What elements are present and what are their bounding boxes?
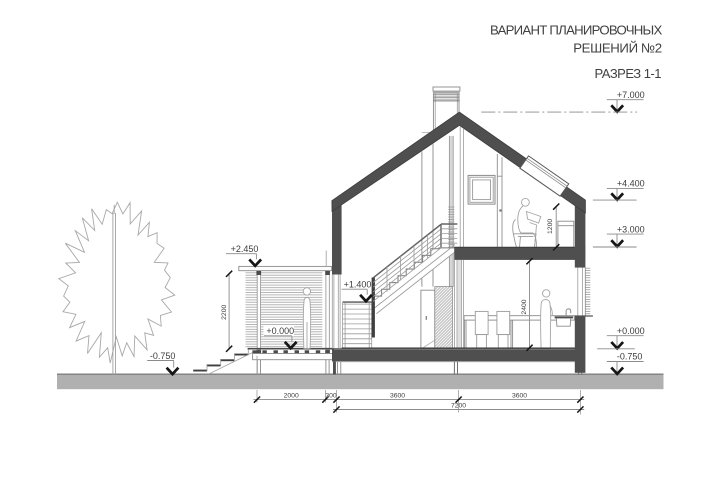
svg-text:-0.750: -0.750 [617, 352, 643, 362]
svg-text:+2.450: +2.450 [231, 244, 259, 254]
svg-text:+7.000: +7.000 [617, 90, 645, 100]
svg-text:+3.000: +3.000 [617, 224, 645, 234]
svg-text:1200: 1200 [547, 219, 554, 234]
svg-text:3600: 3600 [512, 393, 527, 400]
svg-text:ВАРИАНТ ПЛАНИРОВОЧНЫХ: ВАРИАНТ ПЛАНИРОВОЧНЫХ [490, 23, 662, 38]
svg-text:+1.400: +1.400 [344, 280, 372, 290]
svg-text:300: 300 [325, 393, 337, 400]
svg-text:3600: 3600 [390, 393, 405, 400]
svg-text:РЕШЕНИЙ №2: РЕШЕНИЙ №2 [573, 40, 662, 55]
svg-text:2000: 2000 [284, 393, 299, 400]
svg-text:-0.750: -0.750 [150, 351, 176, 361]
svg-text:7200: 7200 [451, 403, 466, 410]
svg-text:+0.000: +0.000 [617, 326, 645, 336]
svg-text:2200: 2200 [221, 305, 228, 320]
svg-text:2400: 2400 [521, 299, 528, 314]
svg-text:РАЗРЕЗ 1-1: РАЗРЕЗ 1-1 [595, 66, 662, 81]
svg-text:+0.000: +0.000 [266, 326, 294, 336]
svg-text:+4.400: +4.400 [617, 179, 645, 189]
